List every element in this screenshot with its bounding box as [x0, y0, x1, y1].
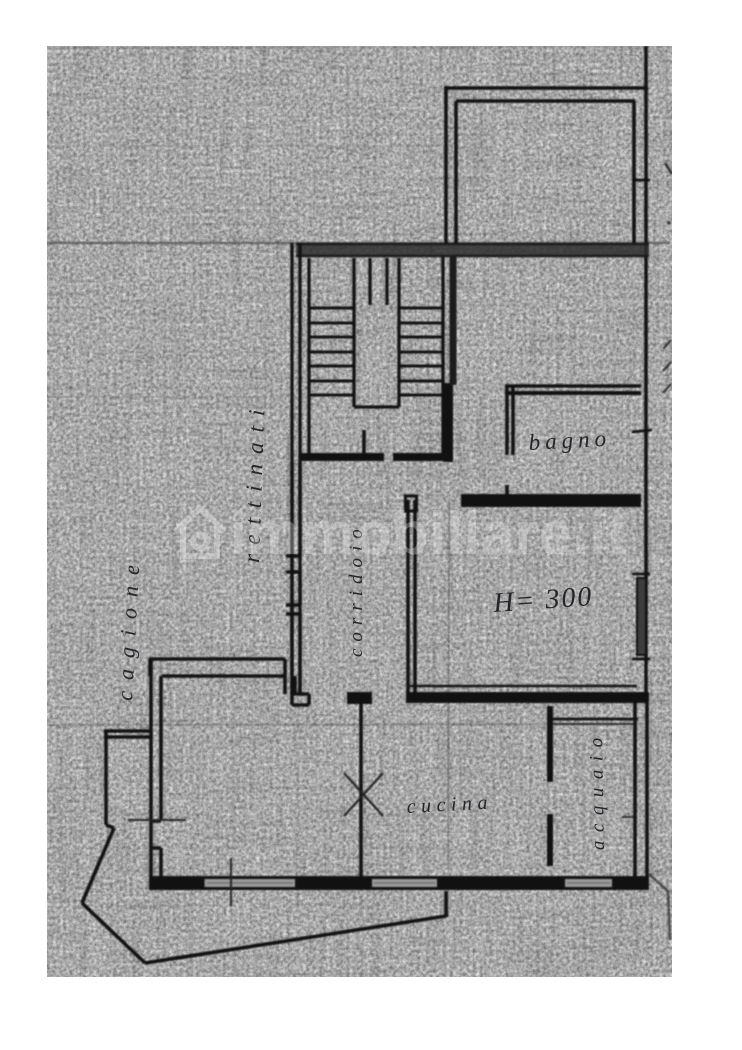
svg-text:cucina: cucina [406, 792, 493, 818]
svg-text:immobiliare.it: immobiliare.it [230, 500, 627, 567]
svg-text:acquaio: acquaio [586, 729, 609, 850]
svg-text:bagno: bagno [528, 426, 612, 455]
